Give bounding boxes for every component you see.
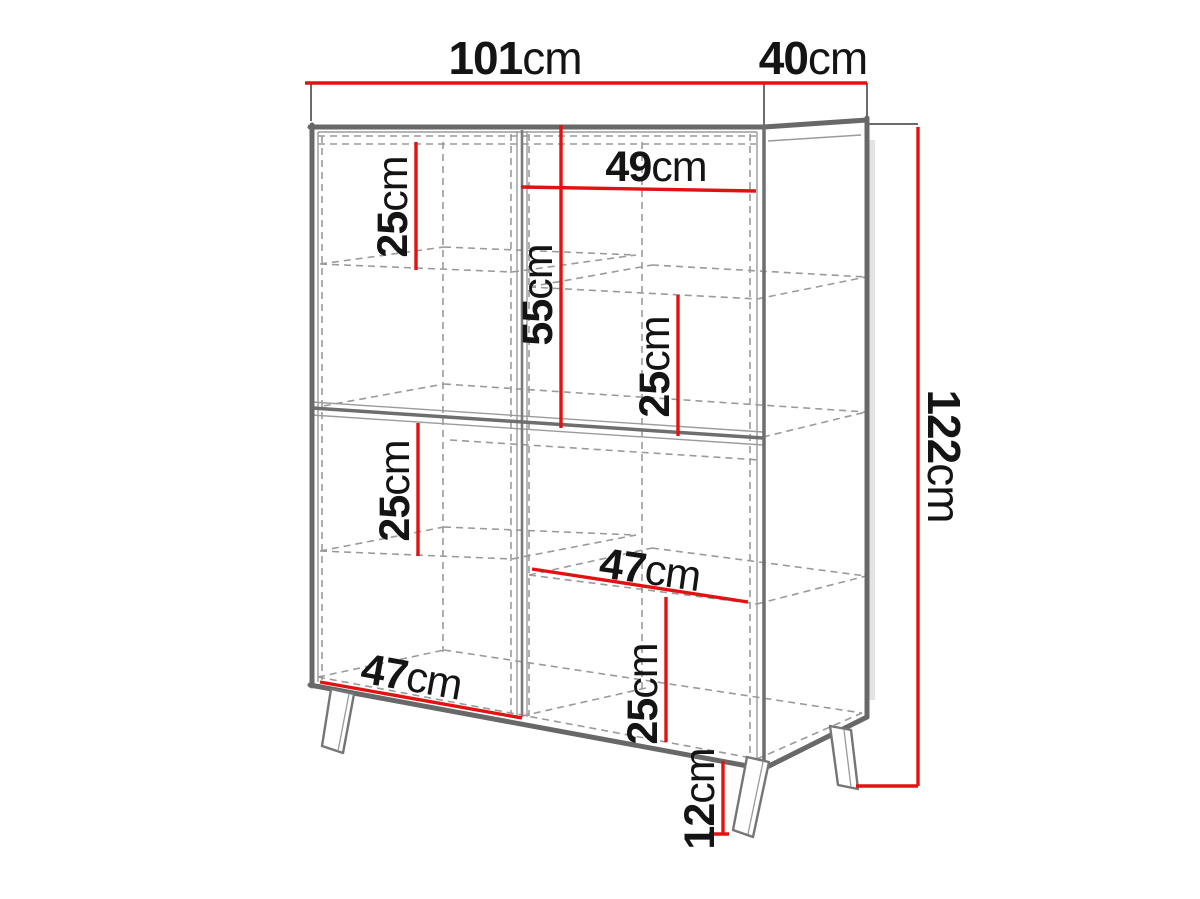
cabinet-diagram-canvas: 101cm 40cm 122cm 25cm 49cm 55cm 25cm 25c… (0, 0, 1200, 899)
lower-left-shelf-dashed (320, 527, 636, 559)
upper-section-height-label: 55cm (514, 244, 562, 345)
lower-left-width-label: 47cm (357, 645, 465, 710)
height-label: 122cm (918, 389, 970, 522)
lower-right-width-label: 47cm (597, 539, 704, 601)
upper-left-shelf-dashed (320, 247, 636, 272)
middle-divider (312, 408, 763, 438)
upper-right-width-label: 49cm (605, 143, 706, 191)
upper-left-shelf-label: 25cm (369, 156, 417, 257)
upper-right-shelf-dashed (529, 265, 866, 299)
depth-label: 40cm (759, 32, 868, 84)
dimension-labels: 101cm 40cm 122cm 25cm 49cm 55cm 25cm 25c… (357, 32, 970, 850)
front-right-leg (733, 757, 769, 837)
width-label: 101cm (448, 32, 581, 84)
upper-right-shelf-label: 25cm (631, 316, 679, 417)
back-right-leg (830, 726, 858, 789)
lower-right-shelf-label: 25cm (619, 643, 667, 744)
front-left-leg (322, 689, 354, 753)
lower-left-shelf-label: 25cm (371, 440, 419, 541)
leg-height-label: 12cm (676, 748, 724, 849)
dimension-diagram: 101cm 40cm 122cm 25cm 49cm 55cm 25cm 25c… (0, 0, 1200, 899)
